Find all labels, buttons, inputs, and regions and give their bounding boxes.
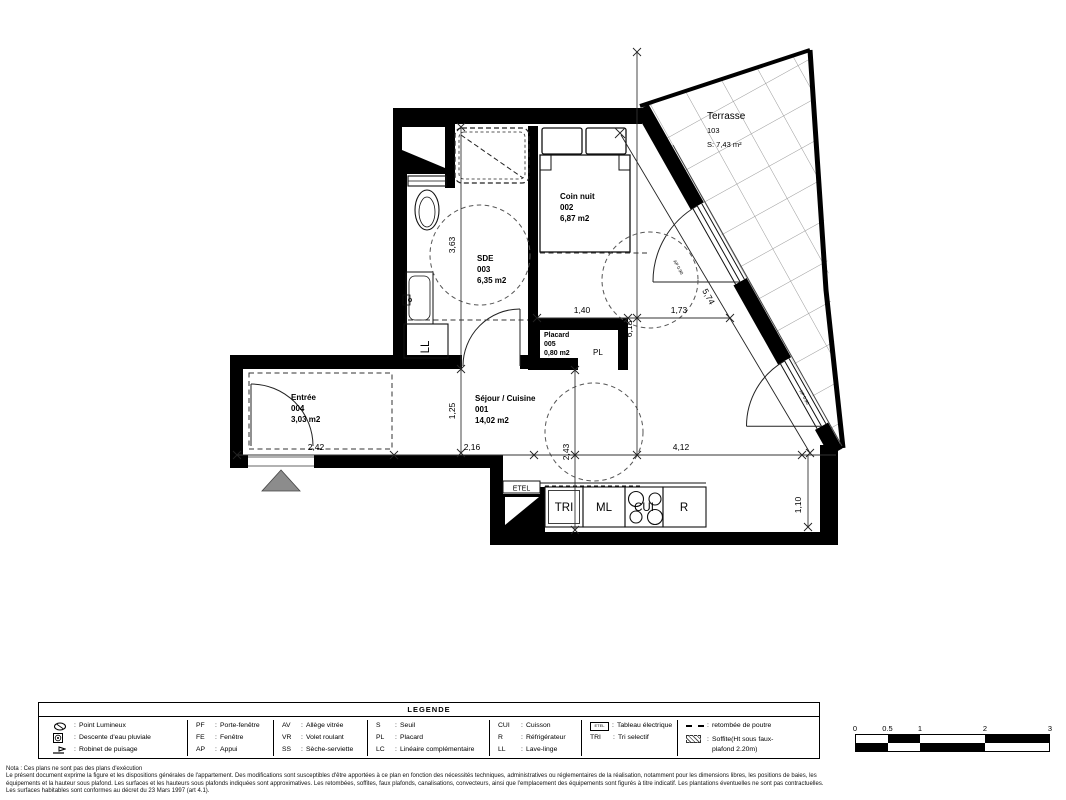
room-sde: SDE 003 6,35 m2 [477, 254, 507, 285]
dim-2-42: 2,42 [308, 442, 325, 452]
legend-item-tableau: ETEL : Tableau électrique [590, 720, 673, 732]
legend-col-av: AV:Allège vitrée VR:Volet roulant SS:Sèc… [273, 720, 367, 756]
tri-label: TRI [555, 502, 574, 514]
placard-area: 0,80 m2 [544, 350, 570, 357]
floor-plan-drawing: Terrasse 103 S: 7,43 m² [0, 0, 1066, 700]
fridge-label: R [680, 502, 688, 514]
sejour-number: 001 [475, 405, 489, 414]
wc-toilet [408, 176, 446, 230]
sde-door [463, 309, 520, 366]
legend-col-cui: CUI:Cuisson R:Réfrigérateur LL:Lave-ling… [489, 720, 581, 756]
entree-area: 3,03 m2 [291, 415, 321, 424]
ml-label: ML [596, 502, 613, 514]
dim-2-16: 2,16 [464, 442, 481, 452]
soffit-icon [686, 735, 704, 743]
floor-plan-page: Terrasse 103 S: 7,43 m² [0, 0, 1066, 800]
sde-number: 003 [477, 265, 491, 274]
terrasse-name: Terrasse [707, 111, 746, 122]
plan-notes: Nota : Ces plans ne sont pas des plans d… [6, 766, 1016, 796]
etel-label: ETEL [513, 486, 531, 493]
legend-col-misc: : retombée de poutre : Soffite(Ht sous f… [677, 720, 819, 756]
legend-item-retombee: : retombée de poutre [686, 720, 815, 732]
coin-nuit-number: 002 [560, 203, 574, 212]
entrance-arrow [262, 470, 300, 491]
cui-label: CUI [634, 502, 654, 514]
placard-number: 005 [544, 341, 556, 348]
dim-1-73: 1,73 [671, 305, 688, 315]
placard-name: Placard [544, 332, 569, 339]
legend-item-soffite: : Soffite(Ht sous faux- [686, 733, 815, 745]
washing-machine-label: LL [420, 340, 432, 353]
coin-nuit-name: Coin nuit [560, 192, 595, 201]
legend: LEGENDE : Point Lumineux : Descente d'ea… [38, 702, 820, 759]
tableau-electrique-icon: ETEL [590, 722, 609, 731]
legend-item-robinet: : Robinet de puisage [53, 744, 183, 756]
descente-eau-pluviale-icon [53, 733, 71, 743]
legend-label: Descente d'eau pluviale [79, 732, 151, 744]
point-lumineux-icon [53, 722, 71, 731]
dim-2-43: 2,43 [561, 443, 571, 460]
terrasse-area: S: 7,43 m² [707, 140, 742, 149]
entry-threshold [248, 457, 314, 466]
washing-machine: LL [404, 324, 448, 358]
legend-item-descente-eau: : Descente d'eau pluviale [53, 732, 183, 744]
dim-3-63: 3,63 [447, 236, 457, 253]
legend-col-s: S:Seuil PL:Placard LC:Linéaire complémen… [367, 720, 489, 756]
sejour-name: Séjour / Cuisine [475, 394, 536, 403]
legend-label: Robinet de puisage [79, 744, 138, 756]
terrasse-number: 103 [707, 126, 720, 135]
electrical-panel: ETEL [503, 481, 540, 493]
robinet-puisage-icon [53, 746, 71, 755]
entree-name: Entrée [291, 393, 316, 402]
dim-1-25: 1,25 [447, 402, 457, 419]
dim-5-74: 5,74 [700, 287, 717, 307]
legend-col-electrical: ETEL : Tableau électrique TRI : Tri sele… [581, 720, 677, 756]
note-line-4: Les surfaces habitables sont conformes a… [6, 788, 1016, 795]
legend-title: LEGENDE [39, 703, 819, 717]
scale-bar: 0 0.5 1 2 3 [855, 724, 1050, 752]
legend-col-pf: PF:Porte-fenêtre FE:Fenêtre AP:Appui [187, 720, 273, 756]
room-terrasse: Terrasse 103 S: 7,43 m² [640, 50, 843, 453]
scale-bar-numbers: 0 0.5 1 2 3 [855, 724, 1050, 734]
note-line-2: Le présent document exprime la figure et… [6, 773, 1016, 780]
legend-col-symbols: : Point Lumineux : Descente d'eau pluvia… [53, 720, 187, 756]
shower [455, 128, 529, 183]
legend-body: : Point Lumineux : Descente d'eau pluvia… [39, 717, 819, 758]
note-line-3: équipements et la hauteur sous plafond. … [6, 781, 1016, 788]
note-line-1: Nota : Ces plans ne sont pas des plans d… [6, 766, 1016, 773]
room-sejour: Séjour / Cuisine 001 14,02 m2 [475, 394, 536, 425]
sejour-area: 14,02 m2 [475, 416, 509, 425]
scale-bar-graphic [855, 734, 1050, 752]
dim-1-10: 1,10 [793, 496, 803, 513]
beam-drop-icon [686, 725, 704, 727]
sde-area: 6,35 m2 [477, 276, 507, 285]
dim-6-18: 6,18 [624, 320, 634, 337]
sink [403, 272, 433, 324]
legend-item-point-lumineux: : Point Lumineux [53, 720, 183, 732]
bed [540, 128, 630, 252]
entree-soffit-rect [249, 373, 392, 449]
room-placard: Placard 005 0,80 m2 PL [544, 332, 603, 357]
placard-tag: PL [593, 348, 603, 357]
sde-name: SDE [477, 254, 494, 263]
room-entree: Entrée 004 3,03 m2 [291, 393, 321, 424]
dim-1-40: 1,40 [574, 305, 591, 315]
legend-item-tri: TRI : Tri selectif [590, 732, 673, 744]
dim-4-12: 4,12 [673, 442, 690, 452]
legend-label: Point Lumineux [79, 720, 126, 732]
coin-nuit-area: 6,87 m2 [560, 214, 590, 223]
window-1-sill-label: AP 0.90 [672, 259, 684, 276]
entree-number: 004 [291, 404, 305, 413]
